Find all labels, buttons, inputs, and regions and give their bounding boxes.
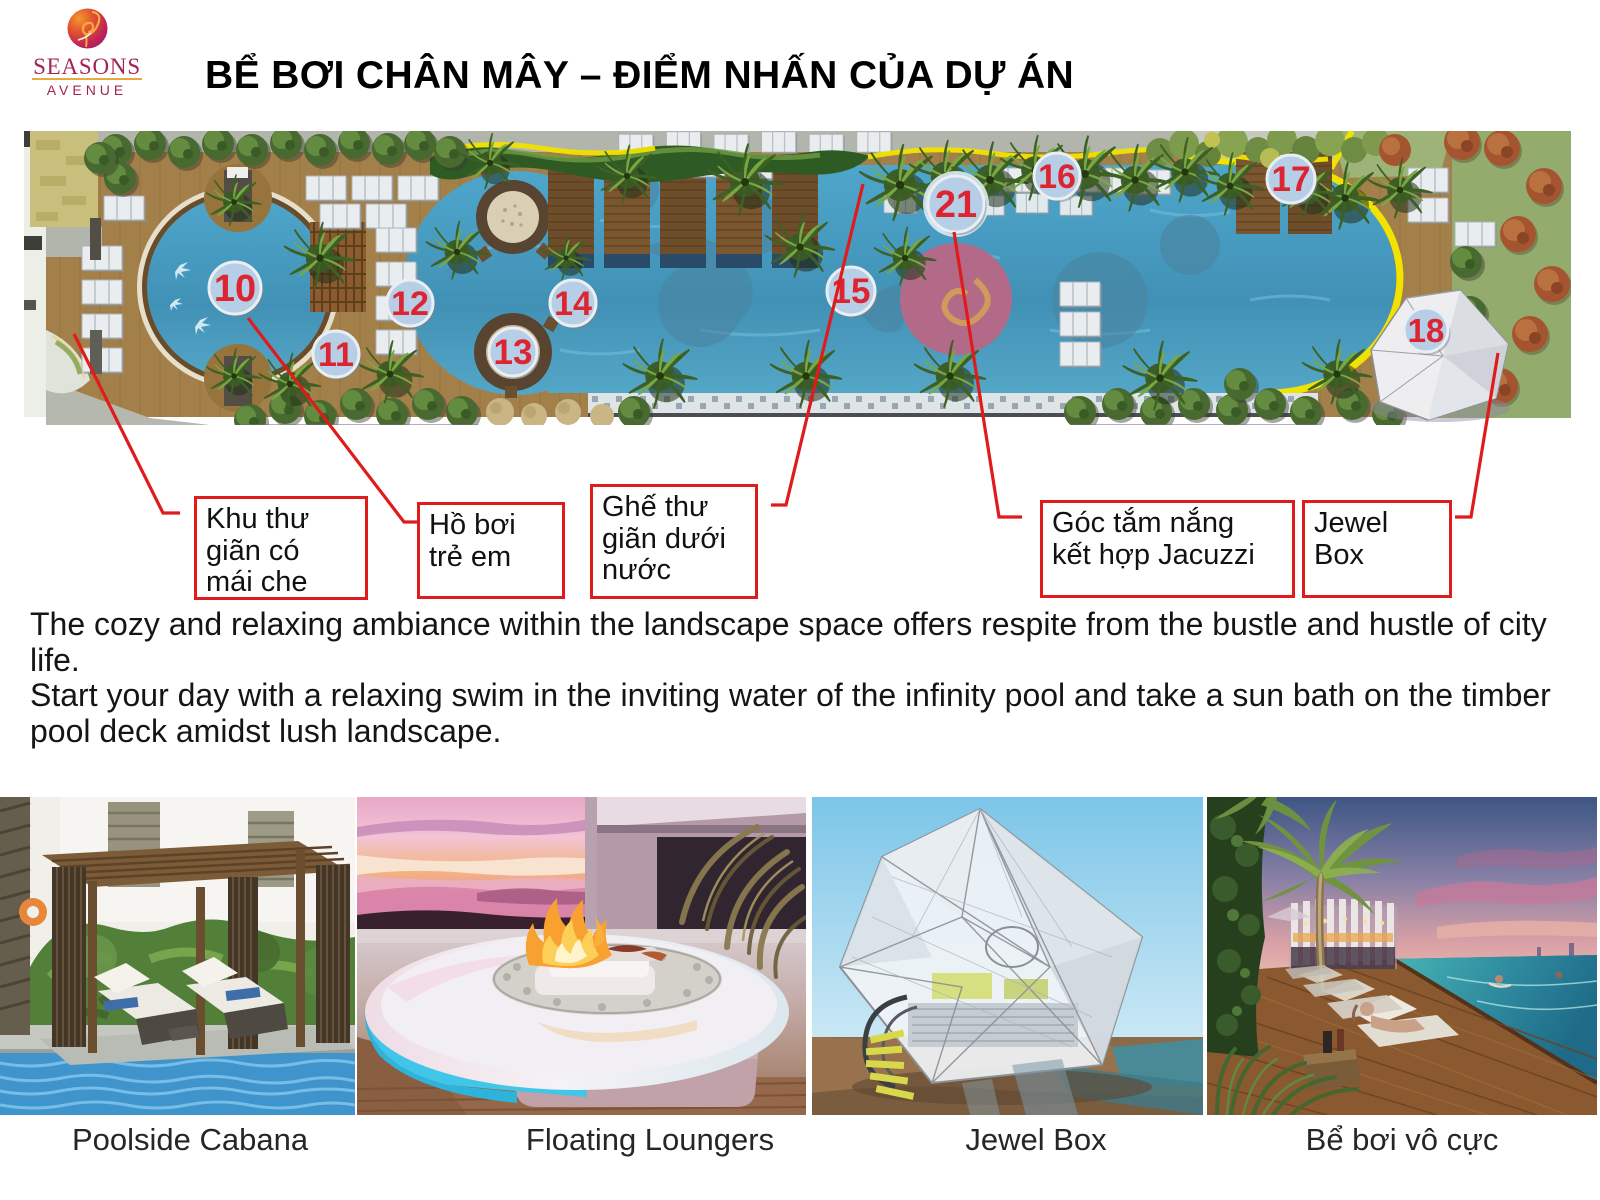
svg-text:AVENUE: AVENUE xyxy=(47,82,128,98)
svg-text:21: 21 xyxy=(935,184,977,226)
svg-text:15: 15 xyxy=(832,272,871,311)
svg-text:13: 13 xyxy=(494,333,533,372)
svg-text:12: 12 xyxy=(391,285,429,323)
svg-text:10: 10 xyxy=(214,268,256,310)
svg-text:14: 14 xyxy=(554,285,592,323)
svg-text:18: 18 xyxy=(1408,312,1445,349)
svg-text:SEASONS: SEASONS xyxy=(33,54,141,79)
svg-text:17: 17 xyxy=(1272,160,1311,199)
svg-text:11: 11 xyxy=(318,336,354,374)
svg-text:16: 16 xyxy=(1038,158,1076,196)
